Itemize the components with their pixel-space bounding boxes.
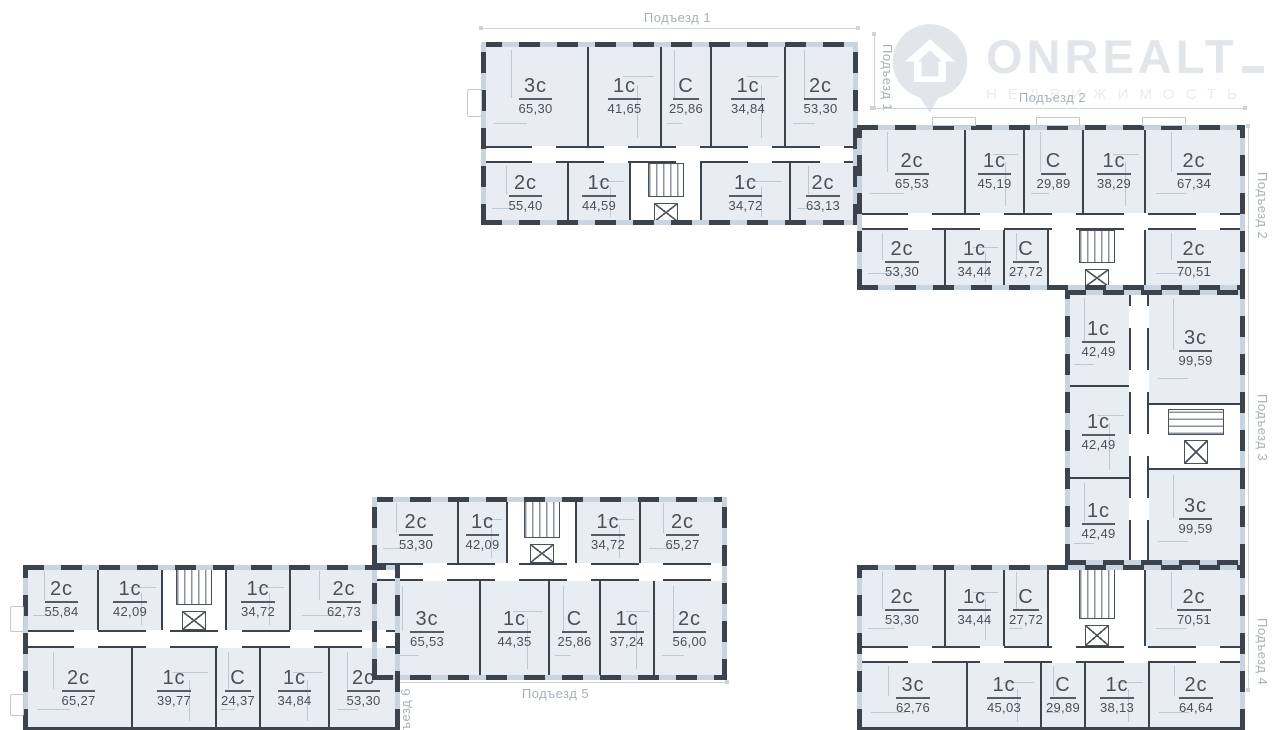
- apartment-column: 3с99,59 3с99,59: [1149, 293, 1242, 562]
- apartment-type: 1с: [278, 668, 311, 692]
- entrance-1-top-label: Подъезд 1: [600, 10, 755, 25]
- apartment-cell: 2с53,30: [860, 230, 944, 287]
- apartment-cell: 2с65,27: [639, 500, 724, 563]
- apartment-cell: 1с38,13: [1084, 663, 1148, 727]
- entry-canopy: [1036, 117, 1080, 126]
- apartment-type: 1с: [113, 579, 146, 603]
- apartment-cell: 3с62,76: [860, 663, 966, 727]
- apartment-type: 2с: [399, 512, 432, 536]
- entrance-2-side-label: Подъезд 2: [1255, 172, 1270, 239]
- apartment-cell: 1с42,49: [1068, 293, 1129, 385]
- building-entrance-2: 2с65,53 1с45,19 С29,89 1с38,29 2с67,34 2…: [857, 125, 1245, 290]
- apartment-cell: 1с34,44: [944, 230, 1003, 287]
- apartment-area: 39,77: [157, 693, 191, 708]
- apartment-area: 24,37: [221, 693, 255, 708]
- entrance-5-bottom-label: Подъезд 5: [478, 686, 633, 701]
- apartment-row: 2с55,84 1с42,09 1с34,72 2с62,73: [26, 568, 397, 630]
- apartment-area: 44,35: [497, 634, 531, 649]
- apartment-area: 42,49: [1081, 526, 1115, 541]
- entrance-6-side-label: Подъезд 6: [398, 688, 413, 730]
- apartment-area: 37,24: [610, 634, 644, 649]
- apartment-cell: 1с38,29: [1082, 128, 1144, 213]
- apartment-type: 3с: [1179, 496, 1212, 520]
- apartment-cell: 1с44,35: [479, 581, 548, 677]
- apartment-type: 2с: [895, 151, 928, 175]
- apartment-type: 2с: [806, 173, 839, 197]
- apartment-area: 53,30: [885, 264, 919, 279]
- apartment-cell: 2с55,84: [26, 568, 97, 630]
- windows-top: [372, 497, 727, 502]
- windows-bottom: [372, 675, 727, 680]
- stairs-icon: [524, 500, 560, 538]
- apartment-type: 1с: [608, 76, 641, 100]
- apartment-cell: 1с42,09: [457, 500, 506, 563]
- apartment-area: 70,51: [1177, 612, 1211, 627]
- apartment-type: 3с: [519, 76, 552, 100]
- apartment-cell: 1с37,24: [599, 581, 653, 677]
- apartment-area: 38,13: [1100, 700, 1134, 715]
- windows-right: [722, 497, 727, 680]
- apartment-area: 53,30: [399, 537, 433, 552]
- building-entrance-5: 2с53,30 1с42,09 1с34,72 2с65,27 3с65,53 …: [372, 497, 727, 680]
- windows-left: [857, 125, 862, 290]
- apartment-cell: С29,89: [1023, 128, 1082, 213]
- apartment-cell: 1с34,84: [259, 648, 328, 727]
- apartment-type: 2с: [1177, 239, 1210, 263]
- underscore-mark: [1242, 66, 1264, 73]
- entry-canopy: [932, 117, 976, 126]
- apartment-type: 1с: [466, 512, 499, 536]
- apartment-cell: С25,86: [548, 581, 599, 677]
- dimension-line-entrance1-side: [874, 34, 875, 108]
- dimension-line-right-side: [1248, 126, 1249, 690]
- apartment-type: 1с: [157, 668, 190, 692]
- apartment-area: 34,72: [241, 604, 275, 619]
- apartment-type: С: [673, 76, 698, 100]
- apartment-area: 34,44: [957, 264, 991, 279]
- entrance-2-top-label: Подъезд 2: [975, 90, 1130, 105]
- apartment-area: 99,59: [1178, 353, 1212, 368]
- dimension-line-entrance2-top: [872, 108, 1245, 109]
- entrance-4-side-label: Подъезд 4: [1255, 618, 1270, 685]
- apartment-row: 2с65,53 1с45,19 С29,89 1с38,29 2с67,34: [860, 128, 1242, 213]
- windows-bottom: [481, 220, 858, 225]
- apartment-cell: С29,89: [1040, 663, 1084, 727]
- apartment-row: 2с53,30 1с42,09 1с34,72 2с65,27: [375, 500, 724, 563]
- apartment-area: 45,19: [977, 176, 1011, 191]
- windows-right: [1240, 125, 1245, 290]
- windows-right: [395, 565, 400, 730]
- apartment-type: 1с: [1082, 501, 1115, 525]
- windows-left: [857, 565, 862, 730]
- apartment-column: 1с42,49 1с42,49 1с42,49: [1068, 293, 1129, 562]
- apartment-cell: 1с42,09: [97, 568, 161, 630]
- apartment-row: 2с55,40 1с44,59 1с34,72 2с63,13: [484, 163, 855, 222]
- corridor: [1129, 293, 1149, 562]
- apartment-area: 55,84: [44, 604, 78, 619]
- apartment-cell: 1с34,72: [575, 500, 639, 563]
- apartment-type: 3с: [896, 675, 929, 699]
- entrance-1-side-label: Подъезд 1: [880, 44, 895, 111]
- apartment-type: 2с: [45, 579, 78, 603]
- apartment-area: 65,53: [410, 634, 444, 649]
- apartment-cell: 1с45,19: [964, 128, 1023, 213]
- apartment-type: 2с: [1177, 151, 1210, 175]
- stair-core: [1047, 230, 1144, 287]
- apartment-area: 34,72: [591, 537, 625, 552]
- stair-core: [1149, 403, 1242, 468]
- apartment-type: 1с: [610, 609, 643, 633]
- apartment-cell: 2с64,64: [1148, 663, 1242, 727]
- apartment-type: 2с: [673, 609, 706, 633]
- stairs-icon: [176, 568, 212, 605]
- apartment-type: С: [225, 668, 250, 692]
- windows-left: [481, 42, 486, 225]
- apartment-row: 2с65,27 1с39,77 С24,37 1с34,84 2с53,30: [26, 648, 397, 727]
- apartment-area: 62,73: [327, 604, 361, 619]
- apartment-cell: 2с65,53: [860, 128, 964, 213]
- apartment-type: 1с: [987, 675, 1020, 699]
- apartment-area: 34,72: [728, 198, 762, 213]
- apartment-cell: 2с70,51: [1144, 230, 1242, 287]
- balcony: [10, 694, 24, 716]
- apartment-cell: 1с34,72: [225, 568, 289, 630]
- corridor: [26, 630, 397, 648]
- apartment-area: 65,30: [518, 101, 552, 116]
- apartment-area: 62,76: [896, 700, 930, 715]
- windows-left: [372, 497, 377, 680]
- apartment-area: 41,65: [607, 101, 641, 116]
- apartment-area: 45,03: [987, 700, 1021, 715]
- apartment-type: 1с: [729, 173, 762, 197]
- apartment-cell: 1с42,49: [1068, 477, 1129, 562]
- apartment-area: 38,29: [1097, 176, 1131, 191]
- apartment-cell: С24,37: [215, 648, 259, 727]
- apartment-cell: 1с34,72: [700, 163, 789, 222]
- apartment-type: 2с: [666, 512, 699, 536]
- apartment-type: 3с: [1179, 328, 1212, 352]
- apartment-cell: 1с34,44: [944, 568, 1003, 646]
- corridor: [860, 213, 1242, 230]
- apartment-type: 2с: [885, 239, 918, 263]
- apartment-area: 42,09: [465, 537, 499, 552]
- apartment-cell: 2с53,30: [784, 45, 855, 146]
- windows-top: [481, 42, 858, 47]
- apartment-type: 1с: [498, 609, 531, 633]
- apartment-area: 53,30: [885, 612, 919, 627]
- apartment-area: 25,86: [669, 101, 703, 116]
- apartment-cell: 2с53,30: [860, 568, 944, 646]
- apartment-cell: 2с53,30: [328, 648, 397, 727]
- apartment-area: 65,27: [665, 537, 699, 552]
- windows-top: [23, 565, 400, 570]
- apartment-area: 65,27: [61, 693, 95, 708]
- apartment-type: 2с: [327, 579, 360, 603]
- windows-top: [1065, 290, 1245, 295]
- apartment-cell: 2с65,27: [26, 648, 131, 727]
- apartment-cell: 3с65,30: [484, 45, 587, 146]
- apartment-area: 63,13: [806, 198, 840, 213]
- apartment-area: 29,89: [1036, 176, 1070, 191]
- apartment-type: 1с: [958, 239, 991, 263]
- apartment-type: 1с: [1097, 151, 1130, 175]
- apartment-cell: 2с70,51: [1144, 568, 1242, 646]
- apartment-area: 34,84: [731, 101, 765, 116]
- apartment-type: 1с: [1100, 675, 1133, 699]
- apartment-cell: 1с42,49: [1068, 385, 1129, 477]
- apartment-area: 34,44: [957, 612, 991, 627]
- windows-left: [1065, 290, 1070, 565]
- apartment-cell: 2с63,13: [789, 163, 855, 222]
- apartment-cell: 1с41,65: [587, 45, 660, 146]
- apartment-area: 27,72: [1009, 612, 1043, 627]
- apartment-type: 2с: [62, 668, 95, 692]
- apartment-type: 1с: [591, 512, 624, 536]
- building-entrance-4: 2с53,30 1с34,44 С27,72 2с70,51 3с62,76 1…: [857, 565, 1245, 730]
- apartment-cell: 1с44,59: [567, 163, 629, 222]
- apartment-area: 56,00: [672, 634, 706, 649]
- stairs-icon: [648, 163, 684, 197]
- apartment-area: 27,72: [1009, 264, 1043, 279]
- apartment-type: 2с: [1177, 587, 1210, 611]
- apartment-area: 53,30: [346, 693, 380, 708]
- apartment-area: 70,51: [1177, 264, 1211, 279]
- apartment-cell: С27,72: [1003, 230, 1047, 287]
- apartment-area: 53,30: [803, 101, 837, 116]
- apartment-cell: 2с56,00: [653, 581, 724, 677]
- apartment-area: 67,34: [1177, 176, 1211, 191]
- apartment-area: 55,40: [508, 198, 542, 213]
- stair-core: [161, 568, 225, 630]
- apartment-area: 65,53: [895, 176, 929, 191]
- apartment-row: 3с62,76 1с45,03 С29,89 1с38,13 2с64,64: [860, 663, 1242, 727]
- entrance-3-side-label: Подъезд 3: [1255, 394, 1270, 461]
- elevator-icon: [182, 611, 206, 630]
- stairs-icon: [1079, 568, 1115, 619]
- windows-right: [1240, 565, 1245, 730]
- apartment-area: 42,49: [1081, 344, 1115, 359]
- apartment-type: 2с: [509, 173, 542, 197]
- apartment-type: С: [1013, 587, 1038, 611]
- house-pin-icon: [888, 22, 972, 114]
- apartment-type: 1с: [1082, 412, 1115, 436]
- floor-plan: ONREALT НЕДВИЖИМОСТЬ Подъезд 1 Подъезд 1…: [0, 0, 1280, 730]
- apartment-row: 3с65,53 1с44,35 С25,86 1с37,24 2с56,00: [375, 581, 724, 677]
- apartment-type: 3с: [410, 609, 443, 633]
- building-entrance-1: 3с65,30 1с41,65 С25,86 1с34,84 2с53,30 2…: [481, 42, 858, 225]
- corridor: [484, 146, 855, 163]
- apartment-row: 2с53,30 1с34,44 С27,72 2с70,51: [860, 568, 1242, 646]
- dimension-line-entrance1-top: [481, 28, 858, 29]
- apartment-type: 1с: [958, 587, 991, 611]
- entry-canopy: [1142, 117, 1186, 126]
- apartment-cell: 2с55,40: [484, 163, 567, 222]
- apartment-cell: 3с99,59: [1149, 468, 1242, 562]
- apartment-type: 1с: [241, 579, 274, 603]
- corridor: [375, 563, 724, 581]
- apartment-cell: 1с39,77: [131, 648, 215, 727]
- apartment-type: С: [562, 609, 587, 633]
- apartment-area: 42,09: [113, 604, 147, 619]
- stair-core: [506, 500, 575, 563]
- elevator-icon: [1085, 625, 1109, 646]
- apartment-area: 44,59: [582, 198, 616, 213]
- stairs-icon: [1079, 230, 1115, 263]
- apartment-cell: С25,86: [660, 45, 710, 146]
- apartment-row: 3с65,30 1с41,65 С25,86 1с34,84 2с53,30: [484, 45, 855, 146]
- stairs-icon: [1168, 409, 1224, 435]
- apartment-area: 99,59: [1178, 521, 1212, 536]
- dimension-line-entrance5-bottom: [375, 682, 727, 683]
- building-entrance-6: 2с55,84 1с42,09 1с34,72 2с62,73 2с65,27 …: [23, 565, 400, 730]
- elevator-icon: [1184, 440, 1208, 464]
- apartment-cell: 2с53,30: [375, 500, 457, 563]
- apartment-cell: 1с45,03: [966, 663, 1040, 727]
- apartment-cell: С27,72: [1003, 568, 1047, 646]
- windows-top: [857, 565, 1245, 570]
- apartment-type: С: [1041, 151, 1066, 175]
- apartment-cell: 3с99,59: [1149, 293, 1242, 403]
- building-entrance-3: 1с42,49 1с42,49 1с42,49 3с99,59 3с99,59: [1065, 290, 1245, 565]
- apartment-type: 2с: [804, 76, 837, 100]
- apartment-type: 1с: [582, 173, 615, 197]
- apartment-type: С: [1050, 675, 1075, 699]
- apartment-row: 2с53,30 1с34,44 С27,72 2с70,51: [860, 230, 1242, 287]
- apartment-type: 1с: [1082, 319, 1115, 343]
- apartment-type: 1с: [731, 76, 764, 100]
- apartment-area: 34,84: [277, 693, 311, 708]
- brand-name: ONREALT: [986, 33, 1264, 80]
- apartment-area: 42,49: [1081, 437, 1115, 452]
- apartment-cell: 1с34,84: [710, 45, 784, 146]
- corridor: [860, 646, 1242, 663]
- stair-core: [1047, 568, 1144, 646]
- apartment-type: 1с: [978, 151, 1011, 175]
- apartment-type: С: [1013, 239, 1038, 263]
- balcony: [10, 606, 24, 632]
- apartment-area: 25,86: [557, 634, 591, 649]
- stair-core: [629, 163, 700, 222]
- elevator-icon: [530, 544, 554, 563]
- apartment-cell: 2с67,34: [1144, 128, 1242, 213]
- apartment-type: 2с: [1179, 675, 1212, 699]
- windows-right: [1240, 290, 1245, 565]
- apartment-area: 64,64: [1179, 700, 1213, 715]
- apartment-area: 29,89: [1046, 700, 1080, 715]
- apartment-type: 2с: [885, 587, 918, 611]
- balcony: [467, 89, 482, 117]
